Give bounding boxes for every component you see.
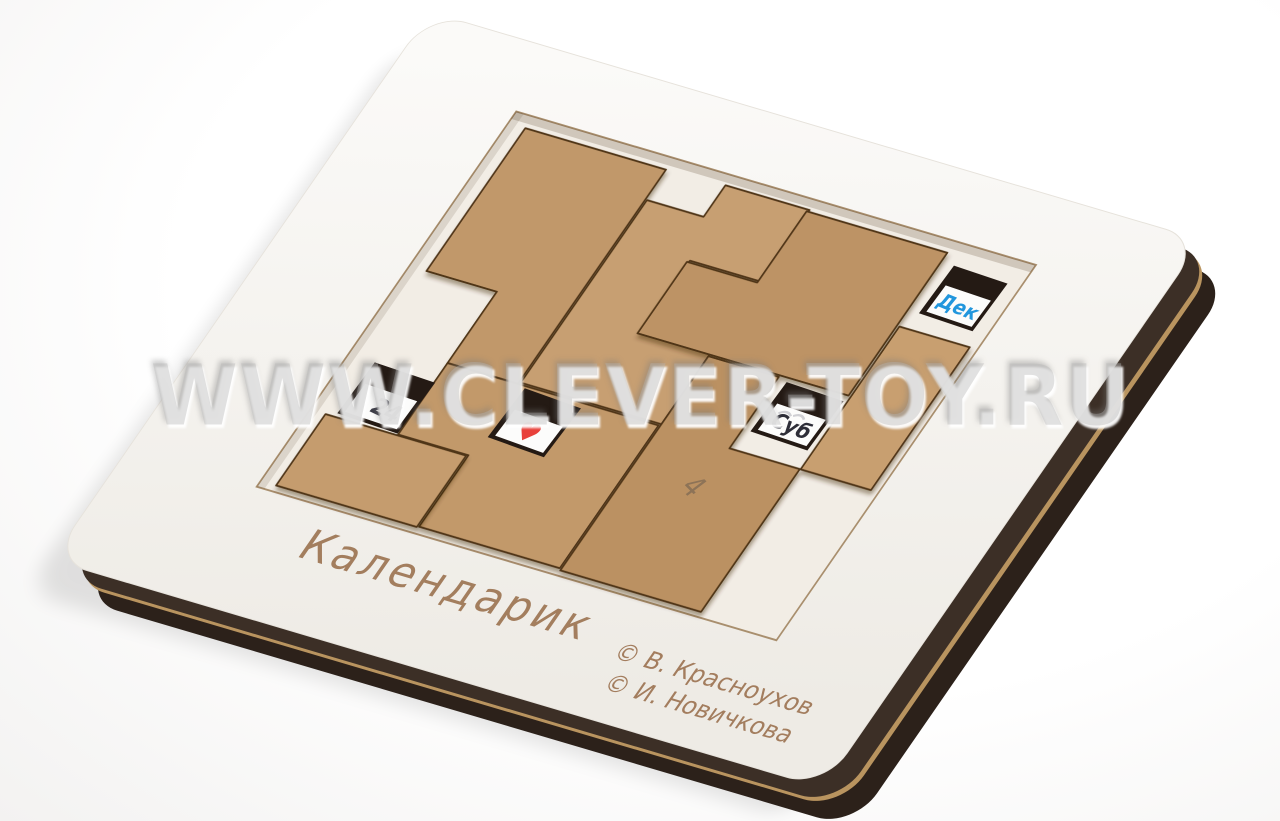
puzzle-board-graphic: 4 24 ♥ Суб <box>0 0 1280 821</box>
board: 4 24 ♥ Суб <box>51 12 1202 788</box>
product-photo: 4 24 ♥ Суб <box>0 0 1280 821</box>
